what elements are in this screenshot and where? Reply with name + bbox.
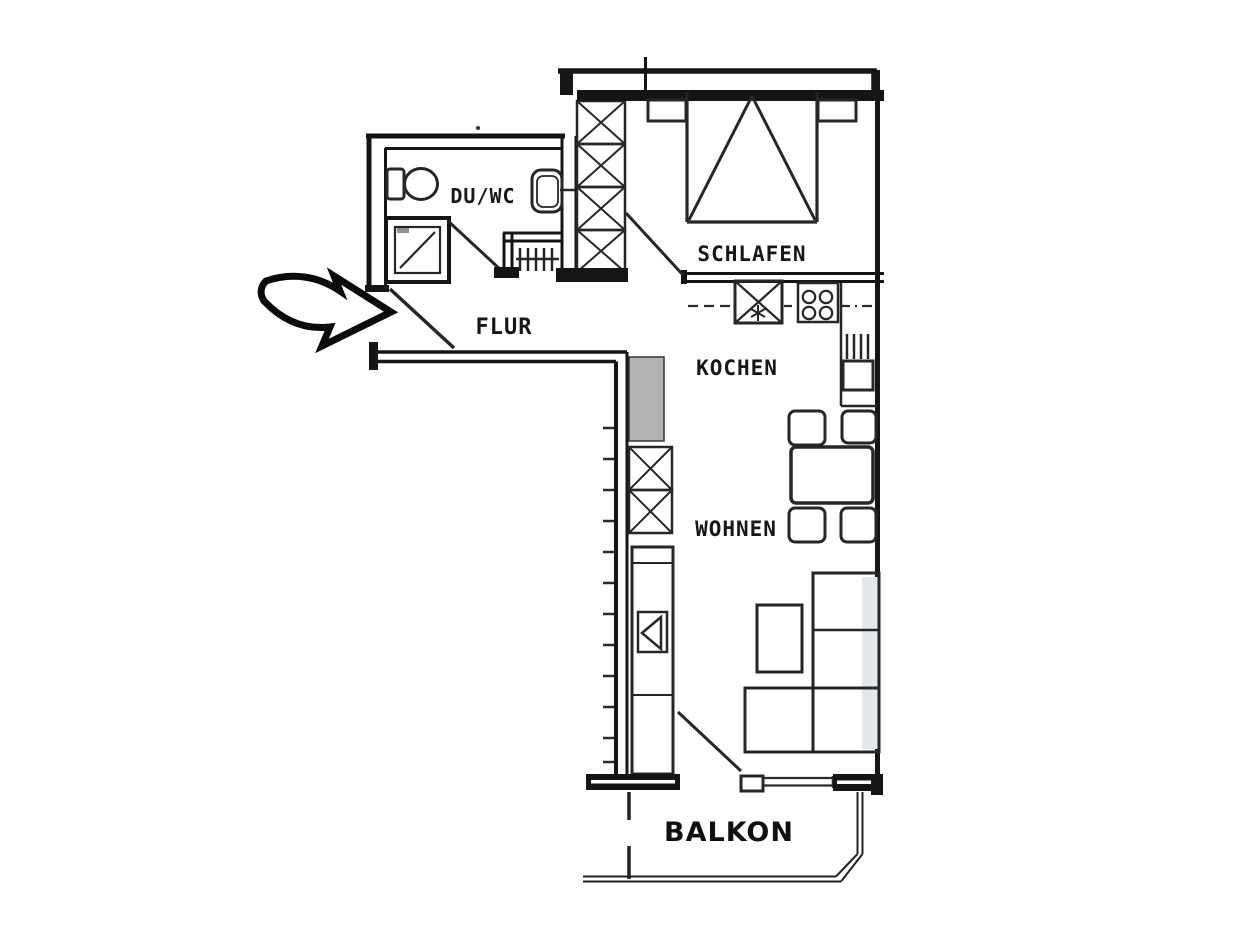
roof-overhang-line bbox=[558, 71, 874, 90]
corner-sofa-icon bbox=[745, 573, 879, 752]
stove-icon bbox=[798, 283, 838, 322]
window bbox=[763, 776, 833, 788]
refrigerator-icon bbox=[843, 361, 873, 390]
bathroom-door-leaf bbox=[448, 221, 502, 271]
radiator-icon bbox=[516, 248, 559, 271]
kitchen-sink-icon bbox=[735, 281, 782, 323]
wall-hatch-ticks bbox=[603, 428, 614, 762]
plan-dot bbox=[476, 126, 480, 130]
balcony-label: BALKON bbox=[664, 817, 794, 848]
entrance-door-leaf bbox=[390, 289, 454, 348]
bathroom-label: DU/WC bbox=[450, 184, 515, 208]
wall-cap bbox=[369, 342, 378, 370]
chimney-block bbox=[629, 357, 664, 441]
tv-sideboard-icon bbox=[632, 547, 673, 774]
shower-icon bbox=[386, 218, 449, 282]
nightstand-left-icon bbox=[648, 100, 686, 121]
closet-crosshatch-icon bbox=[629, 447, 672, 533]
wall-stub bbox=[560, 69, 573, 95]
wall-cap bbox=[365, 285, 389, 292]
bedroom-door-leaf bbox=[626, 213, 683, 275]
kitchen-counter bbox=[841, 283, 877, 406]
kitchen: KOCHEN bbox=[688, 281, 877, 406]
kitchen-label: KOCHEN bbox=[696, 356, 778, 380]
wall-foot bbox=[556, 268, 628, 282]
floor-plan-page: DU/WC SCHLAFEN bbox=[0, 0, 1250, 938]
hallway: FLUR bbox=[369, 289, 627, 370]
balcony: BALKON bbox=[583, 792, 863, 882]
toilet-icon bbox=[387, 169, 438, 200]
living-west-wall bbox=[603, 352, 627, 776]
living-label: WOHNEN bbox=[695, 517, 777, 541]
dining-set-icon bbox=[789, 411, 876, 542]
chair bbox=[789, 411, 825, 445]
chair bbox=[842, 411, 876, 443]
bathroom: DU/WC bbox=[365, 134, 576, 292]
wall-foot bbox=[871, 774, 883, 795]
coffee-table-icon bbox=[757, 605, 802, 672]
chair bbox=[789, 508, 825, 542]
floor-plan: DU/WC SCHLAFEN bbox=[0, 0, 1250, 938]
balcony-door-leaf bbox=[678, 712, 741, 771]
washbasin-icon bbox=[532, 170, 575, 212]
living-room: WOHNEN bbox=[629, 357, 879, 774]
double-bed-icon bbox=[687, 92, 817, 222]
wardrobe-crosshatch-icon bbox=[556, 101, 628, 282]
nightstand-right-icon bbox=[818, 100, 856, 121]
bedroom-label: SCHLAFEN bbox=[697, 242, 806, 266]
dining-table bbox=[791, 447, 873, 503]
door-threshold bbox=[741, 776, 763, 791]
chair bbox=[841, 508, 876, 542]
hallway-label: FLUR bbox=[476, 315, 533, 340]
